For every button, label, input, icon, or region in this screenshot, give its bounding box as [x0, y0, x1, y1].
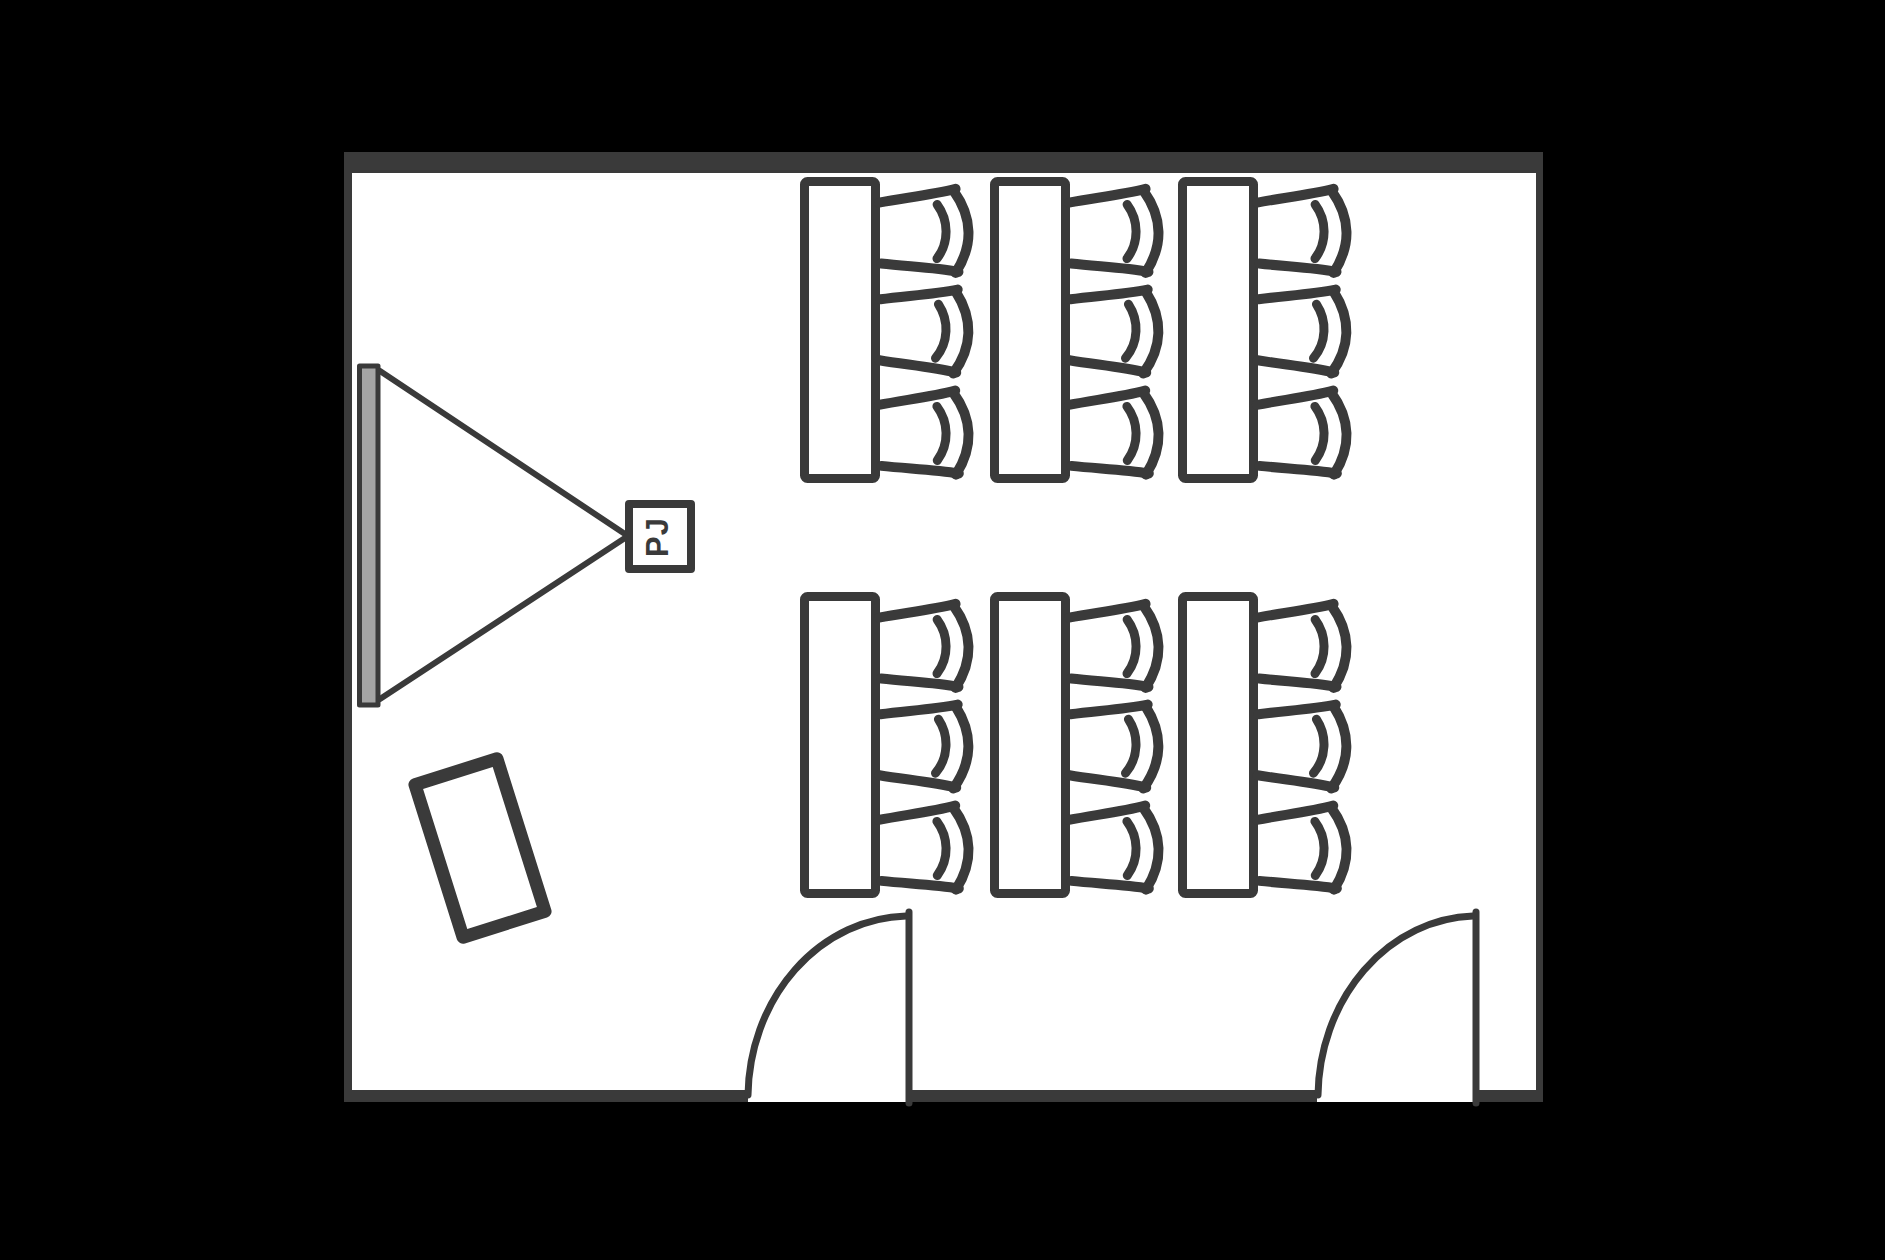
projector-label: PJ: [640, 517, 675, 557]
projection-screen: [360, 366, 379, 705]
wall-left: [344, 152, 352, 1102]
room-floorplan: PJ: [0, 0, 1885, 1260]
wall-right: [1536, 152, 1543, 1102]
wall-bottom-right-segment: [1477, 1090, 1543, 1102]
wall-top: [344, 152, 1543, 173]
wall-bottom-middle-segment: [912, 1090, 1317, 1102]
projector: PJ: [629, 504, 691, 569]
wall-bottom-left-segment: [344, 1090, 748, 1102]
